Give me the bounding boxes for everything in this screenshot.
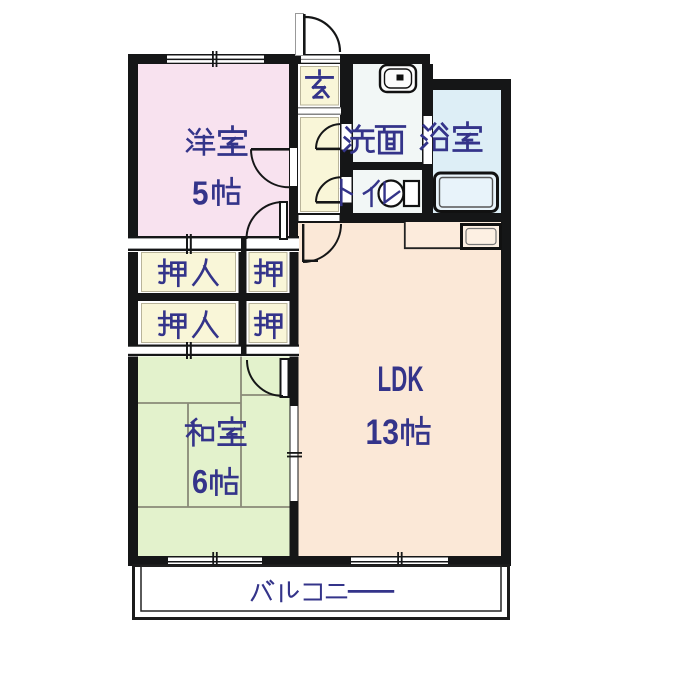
svg-text:6: 6 [192,463,208,500]
svg-text:5: 5 [192,175,209,212]
svg-text:13: 13 [366,413,400,452]
svg-text:LDK: LDK [378,360,424,399]
